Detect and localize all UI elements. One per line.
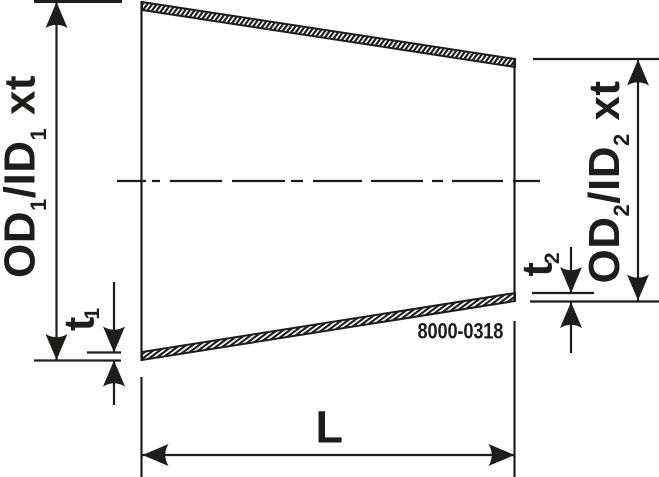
svg-text:OD2/ID2 xt: OD2/ID2 xt xyxy=(580,80,634,283)
svg-text:t1: t1 xyxy=(56,308,105,331)
svg-text:OD1/ID1 xt: OD1/ID1 xt xyxy=(0,75,51,278)
svg-text:t2: t2 xyxy=(514,252,565,276)
svg-text:8000-0318: 8000-0318 xyxy=(418,320,504,344)
svg-text:L: L xyxy=(316,402,344,453)
